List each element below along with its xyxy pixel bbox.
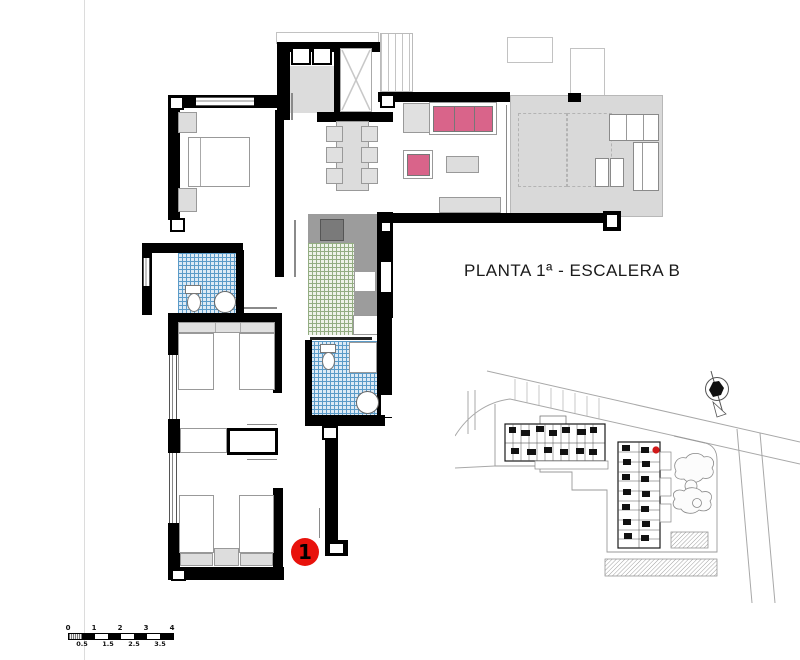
dining-chair	[326, 126, 343, 142]
toilet-bowl	[322, 352, 335, 370]
landing-closet	[312, 47, 332, 65]
sink	[214, 291, 236, 313]
door-line	[247, 424, 277, 425]
wall	[305, 340, 312, 417]
kitchen-appliance	[320, 219, 344, 241]
wardrobe	[180, 428, 227, 453]
site-pool	[673, 453, 713, 513]
wall-post	[322, 426, 338, 440]
terrace-lounge	[633, 142, 659, 191]
wall	[275, 110, 284, 277]
wall	[168, 419, 180, 453]
scale-label: 4	[167, 624, 177, 632]
roof-outline	[507, 37, 553, 63]
wall	[236, 250, 244, 318]
scale-label: 0	[63, 624, 73, 632]
scale-label: 3.5	[153, 640, 167, 648]
landing-floor	[290, 66, 334, 113]
scale-segment	[69, 634, 82, 639]
scale-bar-strip	[68, 633, 174, 640]
scale-segment	[95, 634, 108, 639]
sideboard	[439, 197, 501, 213]
armchair-pink	[407, 154, 430, 176]
landing-closet	[291, 47, 311, 65]
entry-door-leaf	[291, 93, 293, 120]
wall	[305, 415, 385, 426]
site-building-right	[618, 442, 671, 548]
floor-plan-page: 1 PLANTA 1ª - ESCALERA B	[0, 0, 800, 660]
scale-label: 2.5	[127, 640, 141, 648]
wall	[168, 313, 278, 322]
wall	[142, 243, 243, 253]
pillow	[180, 553, 213, 566]
door-line	[319, 508, 320, 538]
door-line	[244, 307, 277, 309]
elevator-shaft	[340, 48, 372, 112]
scale-label: 1.5	[101, 640, 115, 648]
dining-chair	[361, 126, 378, 142]
toilet-bowl	[187, 293, 201, 312]
nightstand	[214, 548, 239, 566]
site-hatch-area	[671, 532, 708, 548]
wall-post	[169, 96, 184, 110]
site-location-dot	[652, 446, 659, 453]
scale-segment	[134, 634, 147, 639]
scale-segment	[82, 634, 95, 639]
door-gap	[381, 262, 391, 292]
wall-post	[171, 569, 186, 581]
wall-post-core	[330, 544, 343, 553]
scale-label: 2	[115, 624, 125, 632]
armchair	[403, 103, 430, 133]
pillow	[240, 553, 273, 566]
stairs	[380, 33, 413, 92]
wardrobe	[227, 428, 278, 455]
site-building-left	[505, 416, 608, 469]
scale-segment	[121, 634, 134, 639]
unit-marker: 1	[291, 538, 319, 566]
sofa-three-seat	[433, 106, 493, 132]
nightstand	[178, 188, 197, 212]
wall	[390, 213, 606, 223]
scale-segment	[108, 634, 121, 639]
wall-notch	[381, 395, 392, 417]
wall-thin	[310, 337, 372, 340]
wall	[568, 93, 581, 102]
wall-post	[380, 94, 395, 108]
unit-marker-label: 1	[298, 540, 312, 564]
terrace-awning-outline	[518, 113, 567, 187]
single-bed	[239, 333, 275, 390]
single-bed	[179, 495, 214, 553]
wall	[378, 92, 510, 102]
window	[196, 97, 254, 106]
terrace-slider-line	[506, 105, 507, 213]
dining-chair	[326, 147, 343, 163]
terrace-table	[610, 158, 624, 187]
wall-post-core	[607, 215, 617, 227]
north-arrow-icon	[706, 371, 729, 417]
wall	[277, 42, 290, 120]
counter-cutout	[355, 272, 375, 291]
window	[169, 355, 177, 419]
headboard	[178, 322, 275, 333]
dining-chair	[326, 168, 343, 184]
door-line	[247, 459, 277, 460]
sink	[356, 391, 379, 414]
scale-label: 1	[89, 624, 99, 632]
terrace-sofa	[609, 114, 659, 141]
parking-ticks	[515, 379, 599, 419]
window	[169, 453, 177, 523]
page-fold-line	[84, 0, 85, 660]
pillow-line	[200, 138, 201, 186]
plan-title: PLANTA 1ª - ESCALERA B	[464, 261, 680, 281]
scale-bar: 0 1 2 3 4 0.5 1.5 2.5 3.5	[66, 624, 180, 650]
scale-label: 0.5	[75, 640, 89, 648]
site-hatch-area	[605, 559, 717, 576]
wall	[325, 440, 338, 542]
elevator-x-icon	[341, 49, 371, 111]
roof-outline	[570, 48, 605, 97]
scale-segment	[147, 634, 160, 639]
kitchen-floor	[308, 243, 354, 335]
dining-chair	[361, 168, 378, 184]
single-bed	[239, 495, 274, 553]
kitchen-appliance	[353, 315, 379, 335]
double-bed	[188, 137, 250, 187]
coffee-table	[446, 156, 479, 173]
wall-post	[170, 218, 185, 232]
nightstand	[178, 112, 197, 133]
scale-segment	[160, 634, 173, 639]
wall	[168, 322, 178, 355]
terrace-table	[595, 158, 609, 187]
scale-label: 3	[141, 624, 151, 632]
shower-tray	[349, 342, 377, 373]
site-plan-drawing	[455, 358, 800, 608]
entrance-door-leaf	[294, 220, 296, 277]
single-bed	[178, 333, 214, 390]
dining-chair	[361, 147, 378, 163]
window	[143, 258, 150, 286]
wall-post	[380, 221, 392, 233]
site-plan	[455, 358, 800, 608]
